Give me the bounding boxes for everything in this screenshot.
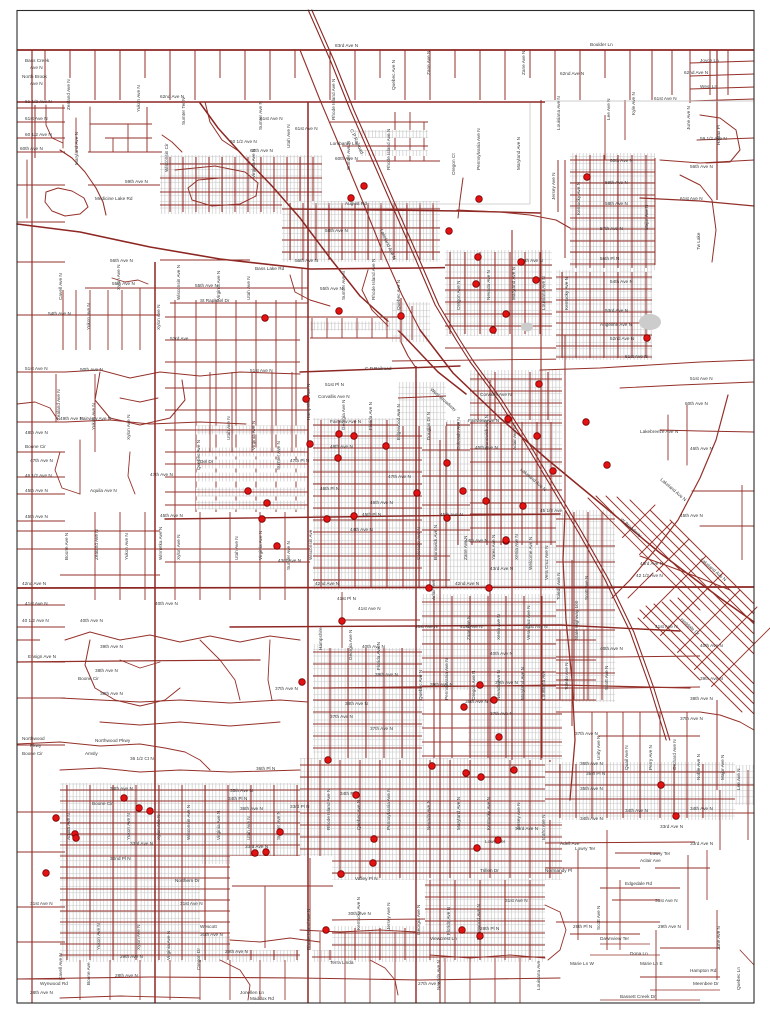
- svg-text:Florida Ave N: Florida Ave N: [446, 907, 451, 935]
- svg-text:Vera Cruz Ave N: Vera Cruz Ave N: [544, 545, 549, 580]
- svg-text:Kyle Ave N: Kyle Ave N: [631, 92, 636, 115]
- svg-text:Lakebreeze Ave N: Lakebreeze Ave N: [640, 429, 678, 434]
- svg-text:61st Ave N: 61st Ave N: [654, 96, 677, 101]
- svg-text:Louisiana Ave: Louisiana Ave: [536, 961, 541, 990]
- svg-text:Wisconsin Ave N: Wisconsin Ave N: [176, 265, 181, 300]
- svg-text:Scott Ave N: Scott Ave N: [584, 576, 589, 600]
- svg-text:37th Ave N: 37th Ave N: [330, 714, 353, 719]
- svg-text:Sumter Ter N: Sumter Ter N: [181, 97, 186, 125]
- svg-text:62nd Ave N: 62nd Ave N: [560, 71, 584, 76]
- svg-text:43rd Ave N: 43rd Ave N: [640, 561, 663, 566]
- svg-text:Dawnview Ter: Dawnview Ter: [600, 936, 630, 941]
- svg-text:Yukon Ave N: Yukon Ave N: [91, 403, 96, 430]
- svg-text:61st Ave N: 61st Ave N: [680, 196, 703, 201]
- svg-text:Oregon Ave N: Oregon Ave N: [471, 671, 476, 700]
- svg-text:40th Ave N: 40th Ave N: [600, 646, 623, 651]
- svg-text:31st Ave N: 31st Ave N: [505, 898, 528, 903]
- svg-text:Louisiana Ave N: Louisiana Ave N: [541, 276, 546, 310]
- svg-text:State Highway 100: State Highway 100: [574, 600, 579, 640]
- svg-text:Yukon Ave N: Yukon Ave N: [126, 813, 131, 840]
- svg-text:28th Ave N: 28th Ave N: [115, 973, 138, 978]
- svg-text:50th Ave N: 50th Ave N: [80, 367, 103, 372]
- svg-text:Amsly: Amsly: [85, 751, 98, 756]
- svg-text:45th Ave N: 45th Ave N: [440, 512, 463, 517]
- svg-text:41st Ave N: 41st Ave N: [655, 624, 678, 629]
- svg-text:Quebec Ln: Quebec Ln: [736, 967, 741, 990]
- svg-text:Normandy Pl: Normandy Pl: [545, 868, 572, 873]
- svg-text:C P Railroad: C P Railroad: [365, 366, 392, 371]
- svg-text:Sumter Ave N: Sumter Ave N: [258, 101, 263, 130]
- svg-text:59th Ave N: 59th Ave N: [605, 180, 628, 185]
- svg-text:Toledo Ave N: Toledo Ave N: [556, 572, 561, 600]
- svg-text:29th Ave N: 29th Ave N: [658, 924, 681, 929]
- svg-text:Xylon Ave N: Xylon Ave N: [156, 305, 161, 330]
- svg-text:55th Ave N: 55th Ave N: [320, 286, 343, 291]
- svg-text:42nd Ave N: 42nd Ave N: [22, 581, 46, 586]
- svg-text:Tw Lake: Tw Lake: [696, 232, 701, 250]
- svg-text:31st Ave N: 31st Ave N: [655, 898, 678, 903]
- svg-text:Rhode Island Ave N: Rhode Island Ave N: [331, 79, 336, 120]
- svg-text:Ave N: Ave N: [30, 65, 43, 70]
- svg-text:Douglas Dr N: Douglas Dr N: [426, 412, 431, 440]
- svg-text:37th Ave N: 37th Ave N: [275, 686, 298, 691]
- svg-text:30th Ave N: 30th Ave N: [200, 932, 223, 937]
- svg-text:55th Ave N: 55th Ave N: [295, 258, 318, 263]
- svg-text:43rd Ave N: 43rd Ave N: [490, 566, 513, 571]
- svg-text:Xylon Ave N: Xylon Ave N: [156, 815, 161, 840]
- svg-text:58th Ave N: 58th Ave N: [325, 228, 348, 233]
- svg-text:June Ave N: June Ave N: [686, 106, 691, 130]
- svg-text:34th Pl N: 34th Pl N: [228, 796, 247, 801]
- svg-text:Nevada Ave N: Nevada Ave N: [496, 670, 501, 700]
- svg-text:41st Pl N: 41st Pl N: [337, 596, 356, 601]
- svg-text:Meenbee Dr: Meenbee Dr: [693, 981, 719, 986]
- svg-text:Utah Ave N: Utah Ave N: [246, 276, 251, 300]
- svg-text:Xenia Ave N: Xenia Ave N: [496, 614, 501, 640]
- svg-text:42nd Ave N: 42nd Ave N: [455, 581, 479, 586]
- svg-text:Yukon Ave N: Yukon Ave N: [96, 923, 101, 950]
- svg-text:45th Ave N: 45th Ave N: [25, 514, 48, 519]
- svg-text:40th Ave N: 40th Ave N: [155, 601, 178, 606]
- svg-text:Maddox Rd: Maddox Rd: [250, 996, 274, 1001]
- svg-text:Utah Ave N: Utah Ave N: [246, 816, 251, 840]
- svg-text:60 1/2 Ave N: 60 1/2 Ave N: [230, 139, 257, 144]
- svg-text:Virginia Ave N: Virginia Ave N: [216, 271, 221, 300]
- svg-text:Virginia Ave N: Virginia Ave N: [251, 149, 256, 178]
- svg-text:Valley Pl N: Valley Pl N: [355, 876, 378, 881]
- svg-text:Dona Ln: Dona Ln: [630, 951, 648, 956]
- svg-text:Maryland Ave N: Maryland Ave N: [456, 797, 461, 830]
- svg-text:42nd Ave N: 42nd Ave N: [315, 581, 339, 586]
- svg-text:Utah Ave N: Utah Ave N: [226, 416, 231, 440]
- svg-text:Xylon Ave N: Xylon Ave N: [126, 415, 131, 440]
- svg-text:Lee Ave N: Lee Ave N: [606, 98, 611, 120]
- svg-text:45 1/2 Ave: 45 1/2 Ave: [540, 508, 562, 513]
- svg-text:Joyce Ln: Joyce Ln: [700, 58, 719, 63]
- svg-text:Sumter Ave N: Sumter Ave N: [286, 541, 291, 570]
- svg-text:Lombardy Ln: Lombardy Ln: [330, 141, 358, 146]
- svg-text:Louisiana Ave: Louisiana Ave: [541, 671, 546, 700]
- svg-text:56th Ave N: 56th Ave N: [690, 164, 713, 169]
- svg-text:37th Ave N: 37th Ave N: [490, 711, 513, 716]
- svg-text:53rd Ave N: 53rd Ave N: [605, 308, 628, 313]
- svg-text:55th Ave N: 55th Ave N: [195, 283, 218, 288]
- svg-text:Aclair Ave: Aclair Ave: [640, 858, 661, 863]
- svg-text:Boone Cir: Boone Cir: [25, 444, 46, 449]
- svg-text:Kentucky Ave N: Kentucky Ave N: [564, 277, 569, 310]
- svg-text:Cavell Ave N: Cavell Ave N: [58, 273, 63, 300]
- svg-text:42 1/2 Ave N: 42 1/2 Ave N: [636, 573, 663, 578]
- svg-text:48th Ave N: 48th Ave N: [330, 444, 353, 449]
- svg-text:41st Ave N: 41st Ave N: [415, 624, 438, 629]
- svg-text:28th Pl N: 28th Pl N: [480, 926, 499, 931]
- svg-text:29th Ave N: 29th Ave N: [225, 949, 248, 954]
- svg-text:Wisconsin Cir: Wisconsin Cir: [164, 143, 169, 172]
- svg-text:40th Ave N: 40th Ave N: [490, 651, 513, 656]
- svg-text:Oregon Ave N: Oregon Ave N: [456, 281, 461, 310]
- svg-text:61st Ave N: 61st Ave N: [25, 116, 48, 121]
- svg-text:48th Ave N: 48th Ave N: [25, 430, 48, 435]
- svg-text:Rhode Island Ave N: Rhode Island Ave N: [386, 129, 391, 170]
- svg-text:39th Ave N: 39th Ave N: [100, 644, 123, 649]
- svg-text:Toledo Ave N: Toledo Ave N: [564, 662, 569, 690]
- svg-text:Major Ave N: Major Ave N: [720, 755, 725, 780]
- svg-text:36th Ave N: 36th Ave N: [240, 806, 263, 811]
- svg-text:28th Ave N: 28th Ave N: [30, 990, 53, 995]
- svg-text:37th Ave N: 37th Ave N: [680, 716, 703, 721]
- svg-text:Winnetka Ave N: Winnetka Ave N: [158, 527, 163, 560]
- svg-text:Noble Ave N: Noble Ave N: [696, 754, 701, 780]
- svg-text:31st Ave N: 31st Ave N: [180, 901, 203, 906]
- svg-text:Quail Ave N: Quail Ave N: [624, 745, 629, 770]
- svg-text:46 1/2 Ave N: 46 1/2 Ave N: [25, 473, 52, 478]
- svg-text:60th Ave N: 60th Ave N: [685, 401, 708, 406]
- svg-text:36th Pl N: 36th Pl N: [256, 766, 275, 771]
- svg-text:58th Ave N: 58th Ave N: [605, 201, 628, 206]
- svg-text:Vera Cruz Ave N: Vera Cruz Ave N: [526, 605, 531, 640]
- svg-text:Virginia Ave N: Virginia Ave N: [258, 531, 263, 560]
- svg-text:35th Ave N: 35th Ave N: [580, 786, 603, 791]
- svg-text:Maryland Ave N: Maryland Ave N: [74, 132, 79, 165]
- svg-text:34th Ave N: 34th Ave N: [580, 816, 603, 821]
- svg-text:Halifax Pl: Halifax Pl: [716, 125, 721, 145]
- svg-text:Jersey Ave N: Jersey Ave N: [551, 172, 556, 200]
- svg-text:38th Ave N: 38th Ave N: [690, 696, 713, 701]
- svg-text:38th Ave N: 38th Ave N: [465, 699, 488, 704]
- svg-text:45th Ave N: 45th Ave N: [680, 513, 703, 518]
- svg-text:Florida Ave N: Florida Ave N: [368, 402, 373, 430]
- svg-text:Brunswick Ave N: Brunswick Ave N: [433, 525, 438, 560]
- svg-text:41st Ave N: 41st Ave N: [358, 606, 381, 611]
- svg-text:Terra Linda: Terra Linda: [330, 960, 354, 965]
- svg-text:Nevada Ave N: Nevada Ave N: [426, 800, 431, 830]
- svg-text:45th Pl N: 45th Pl N: [362, 512, 381, 517]
- svg-text:51st Pl N: 51st Pl N: [325, 382, 344, 387]
- svg-text:Edgewood Ave N: Edgewood Ave N: [396, 404, 401, 440]
- svg-text:Hampshire: Hampshire: [318, 627, 323, 650]
- svg-text:Northwood Pkwy: Northwood Pkwy: [95, 738, 131, 743]
- svg-text:41st Ave N: 41st Ave N: [460, 624, 483, 629]
- svg-text:46th Ave N: 46th Ave N: [690, 446, 713, 451]
- svg-text:Zealand Ave N: Zealand Ave N: [94, 529, 99, 560]
- svg-text:36th Ave N: 36th Ave N: [580, 761, 603, 766]
- svg-text:33rd Ave N: 33rd Ave N: [690, 841, 713, 846]
- svg-text:40th Ave N: 40th Ave N: [362, 644, 385, 649]
- svg-text:Del Dr: Del Dr: [200, 459, 214, 464]
- svg-text:33rd Ave N: 33rd Ave N: [660, 824, 683, 829]
- svg-text:Kentucky Ave N: Kentucky Ave N: [576, 182, 581, 215]
- svg-text:Florida Ave N: Florida Ave N: [376, 642, 381, 670]
- svg-text:Quebec Ave N: Quebec Ave N: [418, 670, 423, 700]
- svg-text:Xylon Ave N: Xylon Ave N: [136, 925, 141, 950]
- svg-text:Perry Ave N: Perry Ave N: [648, 745, 653, 770]
- svg-text:Utah Ave N: Utah Ave N: [286, 124, 291, 148]
- svg-text:54th Ave N: 54th Ave N: [48, 311, 71, 316]
- svg-text:Major Ave N: Major Ave N: [644, 205, 649, 230]
- svg-text:33rd Ave N: 33rd Ave N: [245, 844, 268, 849]
- svg-text:31st Ave N: 31st Ave N: [30, 901, 53, 906]
- svg-text:Scott Ave N: Scott Ave N: [604, 666, 609, 690]
- svg-text:38th Ave N: 38th Ave N: [95, 668, 118, 673]
- svg-text:Utah Ave N: Utah Ave N: [234, 536, 239, 560]
- svg-text:Nevada Ave N: Nevada Ave N: [486, 270, 491, 300]
- svg-text:Wescott: Wescott: [200, 924, 218, 929]
- svg-text:34th Ave N: 34th Ave N: [690, 806, 713, 811]
- svg-text:Wisconsin Ave: Wisconsin Ave: [308, 529, 313, 560]
- svg-text:Boone Ave N: Boone Ave N: [64, 533, 69, 560]
- svg-text:56th Ave N: 56th Ave N: [110, 258, 133, 263]
- svg-text:Louisiana Ave N: Louisiana Ave N: [556, 96, 561, 130]
- svg-text:Rhode Island Ave N: Rhode Island Ave N: [371, 259, 376, 300]
- svg-text:August Rd: August Rd: [345, 201, 367, 206]
- svg-text:Georgia Ave N: Georgia Ave N: [341, 400, 346, 430]
- svg-text:29th Pl N: 29th Pl N: [573, 924, 592, 929]
- svg-text:59 1/2 Ave N: 59 1/2 Ave N: [700, 136, 727, 141]
- svg-text:60th Ave N: 60th Ave N: [20, 146, 43, 151]
- svg-text:Welcome Ave N: Welcome Ave N: [528, 537, 533, 570]
- svg-text:North Brook: North Brook: [22, 74, 48, 79]
- svg-text:Northwood: Northwood: [22, 736, 45, 741]
- svg-text:41st Ave N: 41st Ave N: [25, 601, 48, 606]
- svg-text:Virginia Ave N: Virginia Ave N: [216, 811, 221, 840]
- svg-text:34th Ave N: 34th Ave N: [110, 786, 133, 791]
- svg-text:49th Ave N: 49th Ave N: [60, 416, 83, 421]
- svg-text:61st Ave N: 61st Ave N: [295, 126, 318, 131]
- svg-text:Colorado Ave N: Colorado Ave N: [416, 527, 421, 560]
- svg-text:Aquila Ave N: Aquila Ave N: [66, 813, 71, 840]
- svg-text:Boulder Ln: Boulder Ln: [590, 42, 613, 47]
- svg-text:Ave N: Ave N: [30, 81, 43, 86]
- svg-text:Yates Ave N: Yates Ave N: [491, 535, 496, 560]
- svg-text:46th Pl N: 46th Pl N: [320, 486, 339, 491]
- svg-text:Boone Ave: Boone Ave: [86, 962, 91, 985]
- svg-text:Nevada Ave N: Nevada Ave N: [436, 960, 441, 990]
- svg-text:Rhode Island Ave N: Rhode Island Ave N: [306, 909, 311, 950]
- svg-text:Georgia Ave N: Georgia Ave N: [348, 630, 353, 660]
- svg-text:Boone Cir: Boone Cir: [22, 751, 43, 756]
- svg-text:Lowry Ter: Lowry Ter: [575, 846, 596, 851]
- svg-text:Zane Ave N: Zane Ave N: [521, 51, 526, 75]
- svg-text:Pennsylvania Ave N: Pennsylvania Ave N: [444, 658, 449, 700]
- svg-text:51st Ave N: 51st Ave N: [690, 376, 713, 381]
- svg-text:40 1/2 Ave N: 40 1/2 Ave N: [22, 618, 49, 623]
- svg-text:Unity Ave N: Unity Ave N: [596, 736, 601, 760]
- svg-text:Xylon Ave N: Xylon Ave N: [116, 265, 121, 290]
- svg-text:34th Ave N: 34th Ave N: [625, 808, 648, 813]
- svg-text:45th Ave N: 45th Ave N: [25, 488, 48, 493]
- svg-text:44th Ave N: 44th Ave N: [465, 538, 488, 543]
- svg-text:32nd Pl N: 32nd Pl N: [110, 856, 131, 861]
- svg-text:35th Ave N: 35th Ave N: [230, 788, 253, 793]
- svg-text:61st Ave N: 61st Ave N: [260, 116, 283, 121]
- svg-text:Scott Ave N: Scott Ave N: [596, 906, 601, 930]
- svg-text:47th Ave N: 47th Ave N: [30, 458, 53, 463]
- svg-text:Adell Ave: Adell Ave: [560, 841, 580, 846]
- svg-text:53rd Ave: 53rd Ave: [170, 336, 189, 341]
- svg-text:Corvallis Ave N: Corvallis Ave N: [480, 392, 512, 397]
- svg-text:Jonellen Ln: Jonellen Ln: [240, 990, 264, 995]
- svg-text:51st Ave N: 51st Ave N: [25, 366, 48, 371]
- svg-text:46th Ave N: 46th Ave N: [370, 500, 393, 505]
- svg-text:83rd Ave N: 83rd Ave N: [335, 43, 358, 48]
- svg-text:51st Ave N: 51st Ave N: [625, 354, 648, 359]
- svg-text:Kentucky Ave N: Kentucky Ave N: [486, 797, 491, 830]
- svg-text:39th Ave N: 39th Ave N: [430, 682, 453, 687]
- svg-text:40th Ave N: 40th Ave N: [80, 618, 103, 623]
- svg-text:40th Ave N: 40th Ave N: [700, 643, 723, 648]
- svg-text:Yukon Ave N: Yukon Ave N: [136, 85, 141, 112]
- svg-text:Bassett Creek Dr: Bassett Creek Dr: [620, 994, 656, 999]
- svg-text:Northern Dr: Northern Dr: [175, 878, 200, 883]
- svg-text:Wynwood Rd: Wynwood Rd: [40, 981, 68, 986]
- svg-text:Virginia Ave N: Virginia Ave N: [166, 931, 171, 960]
- svg-text:Kentucky Ave N: Kentucky Ave N: [356, 897, 361, 930]
- svg-text:Corvallis Ave N: Corvallis Ave N: [318, 394, 350, 399]
- svg-text:56th Pl N: 56th Pl N: [600, 256, 619, 261]
- svg-text:Pkwy: Pkwy: [30, 743, 42, 748]
- svg-text:39th Ave N: 39th Ave N: [375, 672, 398, 677]
- svg-text:Rhode Island Ave N: Rhode Island Ave N: [326, 789, 331, 830]
- svg-text:39th Ave N: 39th Ave N: [700, 676, 723, 681]
- svg-text:38th Ave N: 38th Ave N: [100, 691, 123, 696]
- svg-text:Viewcrest Ln: Viewcrest Ln: [430, 936, 457, 941]
- svg-text:Brunswick Ave N: Brunswick Ave N: [484, 415, 489, 450]
- svg-text:Georgia Ave N: Georgia Ave N: [416, 905, 421, 935]
- svg-text:37th Ave N: 37th Ave N: [370, 726, 393, 731]
- svg-text:Quebec Ave N: Quebec Ave N: [356, 800, 361, 830]
- svg-text:54th Ave N: 54th Ave N: [610, 279, 633, 284]
- svg-text:Angeline Ave N: Angeline Ave N: [600, 322, 632, 327]
- svg-text:Quebec Ave N: Quebec Ave N: [396, 280, 401, 310]
- svg-text:Aquila Ave N: Aquila Ave N: [90, 488, 117, 493]
- svg-text:Jersey Ave N: Jersey Ave N: [516, 802, 521, 830]
- svg-text:57th Ave N: 57th Ave N: [600, 226, 623, 231]
- svg-text:Sumter Ave N: Sumter Ave N: [341, 271, 346, 300]
- svg-text:60 1/2 Ave N: 60 1/2 Ave N: [25, 132, 52, 137]
- svg-text:Sumter Ave N: Sumter Ave N: [346, 141, 351, 170]
- svg-text:Marie Ln E: Marie Ln E: [640, 961, 663, 966]
- svg-text:45th Ave N: 45th Ave N: [160, 513, 183, 518]
- svg-text:47th Pl N: 47th Pl N: [290, 458, 309, 463]
- svg-text:West Ln: West Ln: [700, 84, 718, 89]
- svg-text:Pennsylvania Ave N: Pennsylvania Ave N: [476, 128, 481, 170]
- svg-text:52nd Ave N: 52nd Ave N: [610, 336, 634, 341]
- svg-text:Zealand Ave N: Zealand Ave N: [66, 79, 71, 110]
- svg-text:29th Ave N: 29th Ave N: [120, 954, 143, 959]
- svg-text:36 1/2 Ct N: 36 1/2 Ct N: [130, 756, 154, 761]
- svg-text:Zane Ave N: Zane Ave N: [466, 616, 471, 640]
- svg-text:51st Ave N: 51st Ave N: [250, 368, 273, 373]
- svg-text:Xenia Ave N: Xenia Ave N: [514, 534, 519, 560]
- svg-text:Jersey Ave N: Jersey Ave N: [386, 902, 391, 930]
- svg-text:62nd Ave N: 62nd Ave N: [684, 70, 708, 75]
- svg-text:33rd Pl N: 33rd Pl N: [290, 804, 310, 809]
- svg-text:Virginia Ave N: Virginia Ave N: [251, 421, 256, 450]
- svg-text:38th Ave N: 38th Ave N: [345, 701, 368, 706]
- svg-text:Quebec Ave N: Quebec Ave N: [196, 440, 201, 470]
- svg-text:Oregon Dr: Oregon Dr: [196, 948, 201, 970]
- svg-text:St Raphael Dr: St Raphael Dr: [200, 298, 230, 303]
- svg-text:Boone Cir: Boone Cir: [78, 676, 99, 681]
- svg-text:61 1/2 Ave N: 61 1/2 Ave N: [25, 99, 52, 104]
- svg-text:44th Ave N: 44th Ave N: [350, 527, 373, 532]
- svg-text:Maryland Ave N: Maryland Ave N: [520, 667, 525, 700]
- svg-text:Oregon Ct: Oregon Ct: [451, 153, 456, 175]
- svg-text:Adair Ave N: Adair Ave N: [512, 425, 517, 450]
- svg-text:Hampton Rd: Hampton Rd: [690, 968, 717, 973]
- svg-text:Zane Ave N: Zane Ave N: [463, 536, 468, 560]
- svg-text:Lowry Ter: Lowry Ter: [650, 851, 671, 856]
- svg-text:59th Ave N: 59th Ave N: [125, 179, 148, 184]
- svg-text:Wisconsin Ave N: Wisconsin Ave N: [186, 805, 191, 840]
- svg-text:60th Ave N: 60th Ave N: [610, 158, 633, 163]
- svg-text:June Ave N: June Ave N: [716, 926, 721, 950]
- svg-text:Idaho Ave N: Idaho Ave N: [541, 815, 546, 840]
- svg-text:Yukon Ave N: Yukon Ave N: [86, 303, 91, 330]
- svg-text:Maryland Ave N: Maryland Ave N: [516, 137, 521, 170]
- svg-text:Trillen Dr: Trillen Dr: [480, 868, 499, 873]
- svg-text:47th Ave N: 47th Ave N: [150, 472, 173, 477]
- svg-text:Edgedale Rd: Edgedale Rd: [625, 881, 652, 886]
- svg-text:Boone Cir: Boone Cir: [92, 801, 113, 806]
- svg-text:Sumter Ave N: Sumter Ave N: [276, 441, 281, 470]
- svg-text:Yukon Ave N: Yukon Ave N: [124, 533, 129, 560]
- svg-text:33rd Ave N: 33rd Ave N: [130, 841, 153, 846]
- svg-text:Zealand Ave N: Zealand Ave N: [56, 389, 61, 420]
- svg-text:Xylon Ave N: Xylon Ave N: [176, 535, 181, 560]
- svg-text:Bass Creek: Bass Creek: [25, 58, 50, 63]
- svg-text:Colorado Ave N: Colorado Ave N: [456, 417, 461, 450]
- svg-text:Orchard Ave N: Orchard Ave N: [672, 739, 677, 770]
- svg-text:Cavell Ave N: Cavell Ave N: [58, 953, 63, 980]
- svg-text:35th Pl N: 35th Pl N: [586, 771, 605, 776]
- svg-text:Ensign Ave N: Ensign Ave N: [28, 654, 56, 659]
- svg-text:Bass Lake Rd: Bass Lake Rd: [255, 266, 285, 271]
- svg-text:47th Ave N: 47th Ave N: [388, 474, 411, 479]
- svg-text:Zane Ave N: Zane Ave N: [426, 51, 431, 75]
- svg-text:Marie Ln W: Marie Ln W: [570, 961, 595, 966]
- svg-text:Pennsylvania Ave N: Pennsylvania Ave N: [386, 788, 391, 830]
- svg-text:Quebec Ave N: Quebec Ave N: [391, 60, 396, 90]
- svg-text:37th Ave N: 37th Ave N: [575, 731, 598, 736]
- svg-text:Lee Ave N: Lee Ave N: [736, 768, 741, 790]
- svg-text:Maryland Ave N: Maryland Ave N: [511, 267, 516, 300]
- svg-text:Medicine Lake Rd: Medicine Lake Rd: [95, 196, 133, 201]
